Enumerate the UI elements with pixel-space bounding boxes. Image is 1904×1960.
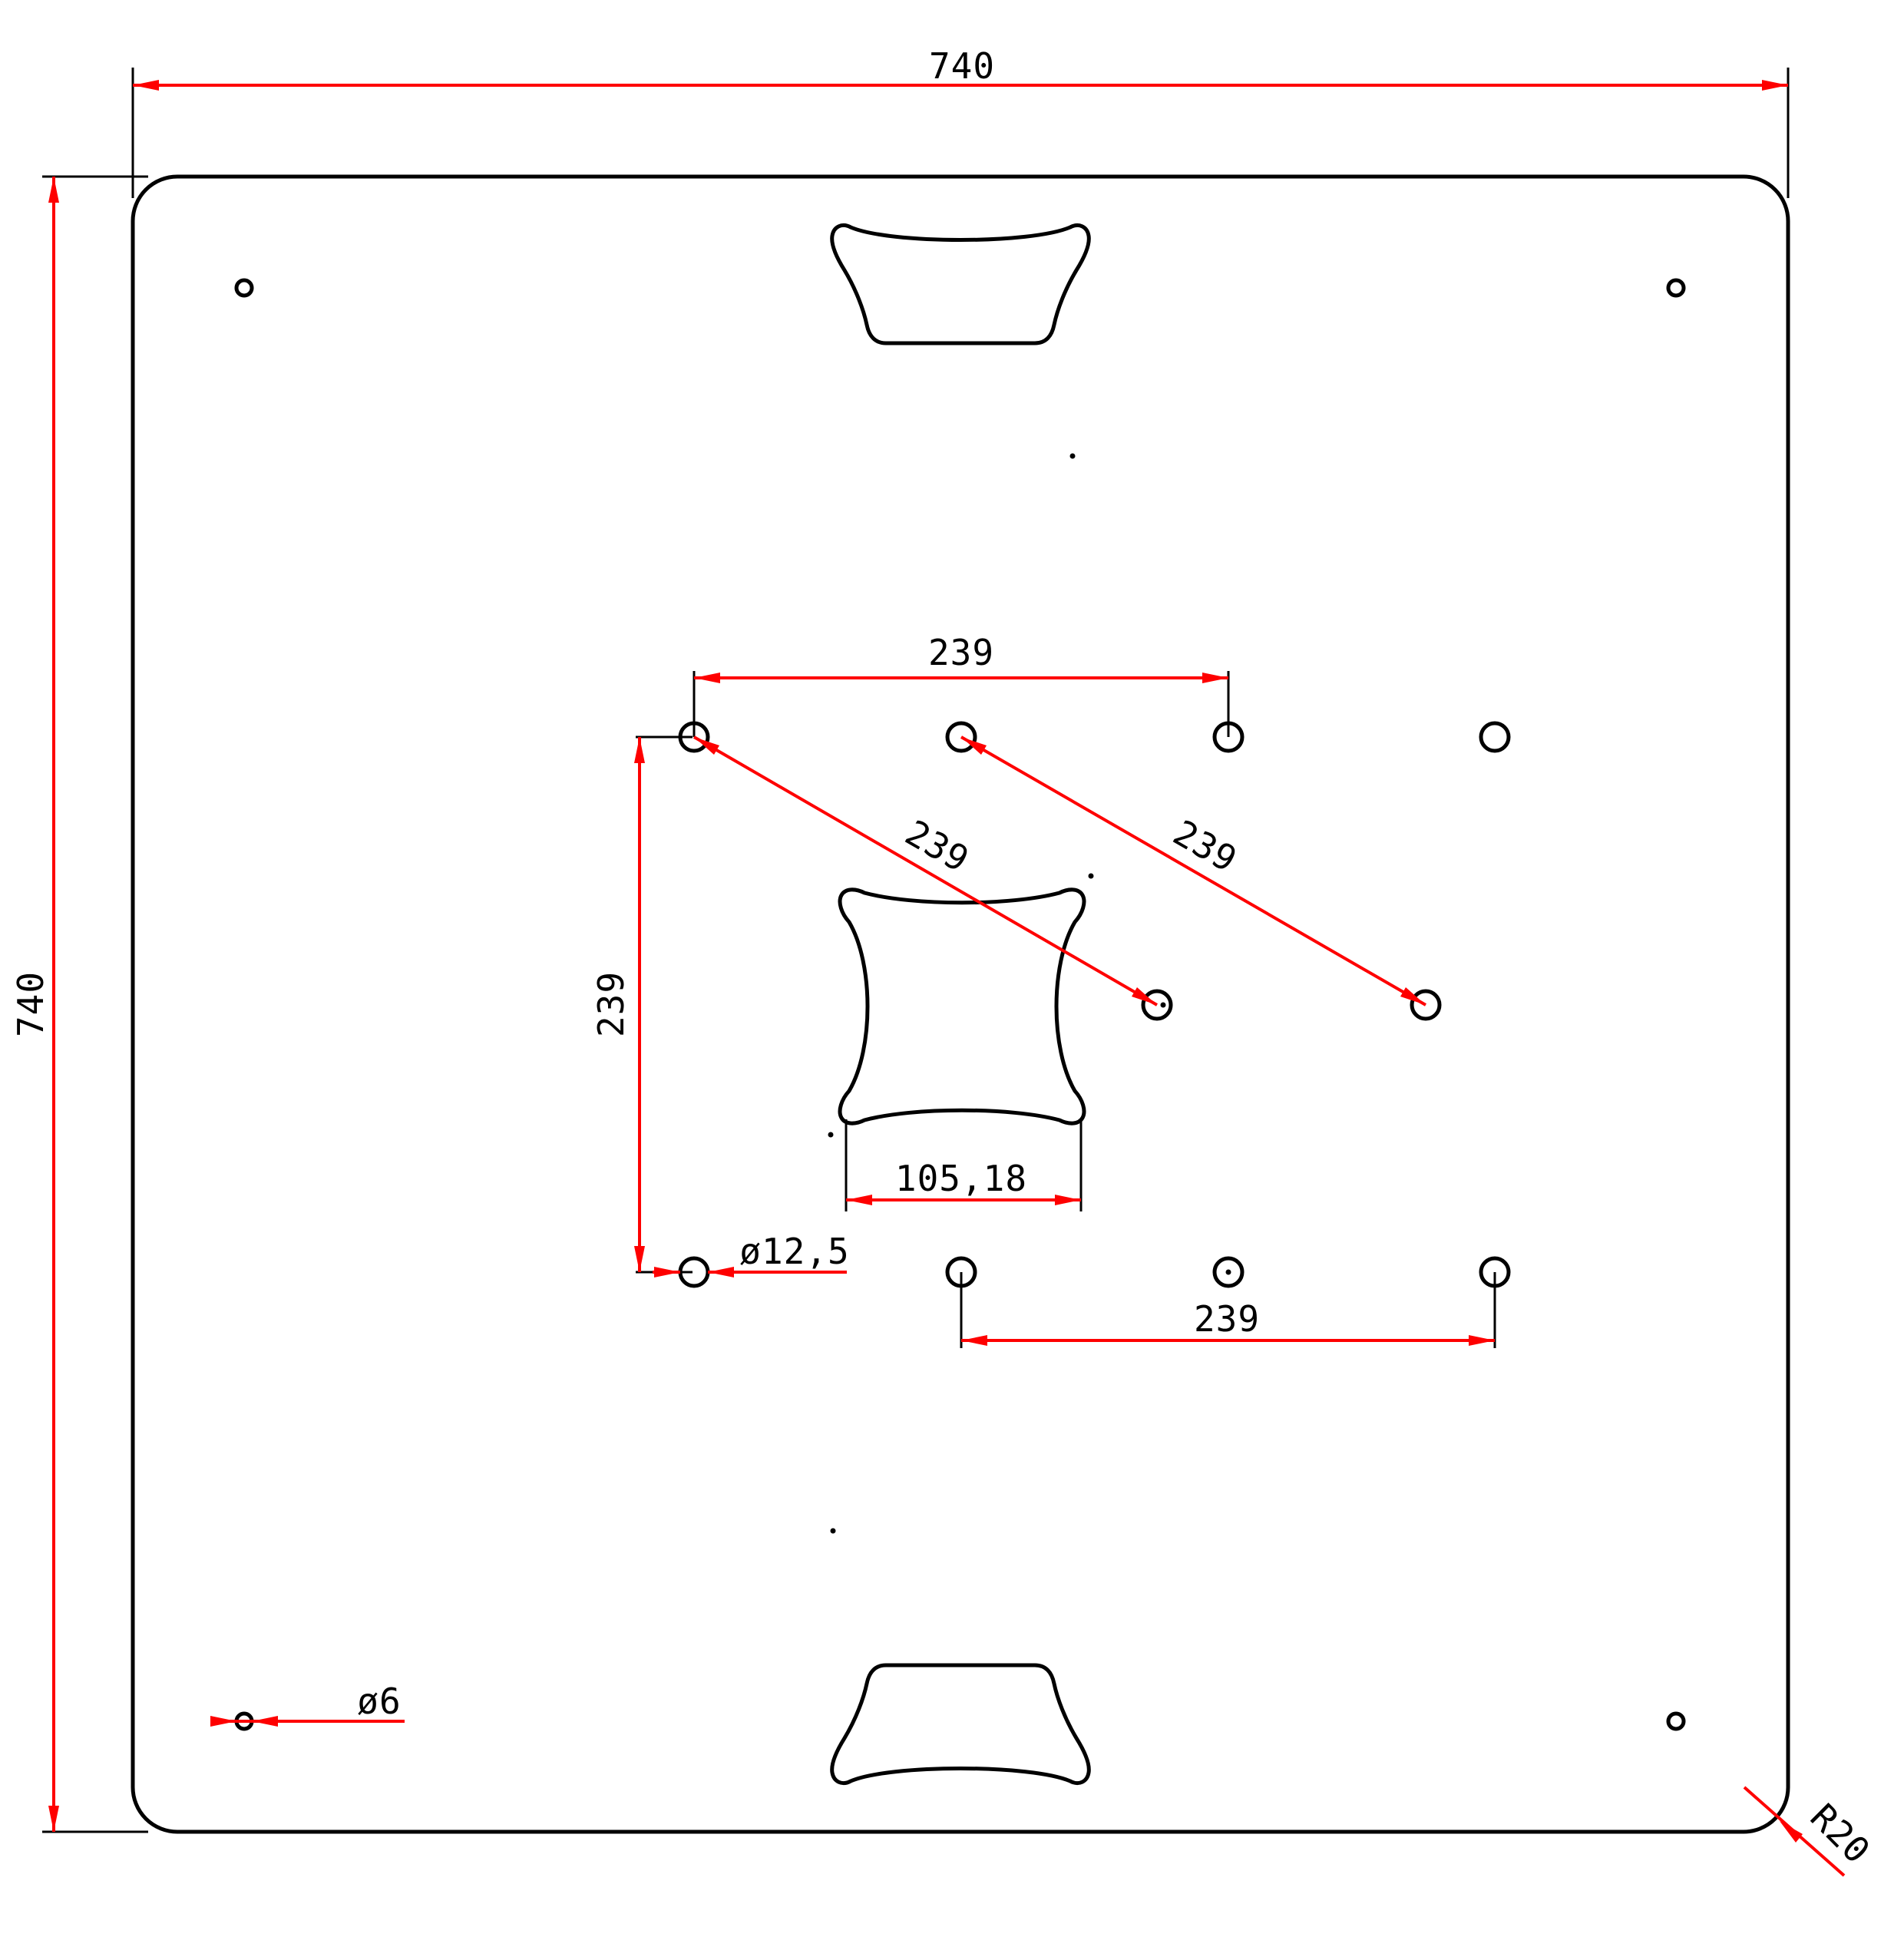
arrow-hole-dia-right — [708, 1267, 734, 1277]
dim-label-top-spacing: 239 — [928, 632, 994, 673]
arrow-cutout-width-right — [1055, 1195, 1081, 1205]
arrow-bottom-spacing-left — [961, 1335, 987, 1346]
cutout-center-cushion — [840, 890, 1084, 1123]
plate-outline — [133, 177, 1788, 1832]
arrow-corner-hole-dia-right — [252, 1716, 278, 1727]
point-marker-1 — [1070, 454, 1076, 459]
dim-label-cutout-width: 105,18 — [895, 1158, 1027, 1199]
corner-hole-bottom-right — [1668, 1714, 1684, 1729]
cutout-bottom-handle — [832, 1665, 1089, 1783]
cutout-top-handle — [832, 225, 1089, 343]
dim-label-plate-width: 740 — [929, 45, 995, 87]
corner-hole-top-left — [236, 280, 252, 296]
arrow-plate-width-right — [1762, 80, 1788, 91]
dim-label-corner-hole-diameter: ø6 — [357, 1681, 401, 1722]
arrow-hole-dia-left — [654, 1267, 680, 1277]
dim-label-diagonal-right: 239 — [1166, 811, 1245, 881]
point-marker-2 — [1089, 874, 1094, 879]
dim-line-diagonal-left — [694, 737, 1157, 1005]
arrow-plate-height-top — [48, 177, 59, 203]
arrow-plate-height-bottom — [48, 1806, 59, 1832]
cad-sheet: 740 740 239 239 239 105,18 239 239 ø12,5… — [0, 0, 1904, 1960]
corner-hole-top-right — [1668, 280, 1684, 296]
dim-label-hole-diameter: ø12,5 — [739, 1231, 849, 1272]
dim-label-corner-radius: R20 — [1803, 1796, 1879, 1872]
dim-label-bottom-spacing: 239 — [1194, 1298, 1260, 1340]
point-marker-5 — [1161, 1003, 1166, 1008]
arrow-left-spacing-top — [634, 737, 645, 763]
dim-line-diagonal-right — [961, 737, 1426, 1005]
point-marker-4 — [831, 1529, 836, 1534]
point-marker-6 — [1226, 1270, 1231, 1275]
cad-drawing: 740 740 239 239 239 105,18 239 239 ø12,5… — [0, 0, 1904, 1960]
arrow-corner-radius — [1780, 1821, 1803, 1843]
dim-label-diagonal-left: 239 — [898, 811, 977, 881]
arrow-plate-width-left — [133, 80, 159, 91]
arrow-corner-hole-dia-left — [210, 1716, 236, 1727]
arrow-top-spacing-right — [1202, 673, 1228, 683]
dim-label-plate-height: 740 — [10, 971, 51, 1037]
arrow-left-spacing-bottom — [634, 1246, 645, 1272]
dim-label-left-spacing: 239 — [590, 971, 632, 1037]
point-marker-3 — [828, 1132, 834, 1138]
pattern-hole-top-4 — [1481, 723, 1509, 751]
arrow-cutout-width-left — [846, 1195, 872, 1205]
arrow-bottom-spacing-right — [1469, 1335, 1495, 1346]
arrow-top-spacing-left — [694, 673, 720, 683]
